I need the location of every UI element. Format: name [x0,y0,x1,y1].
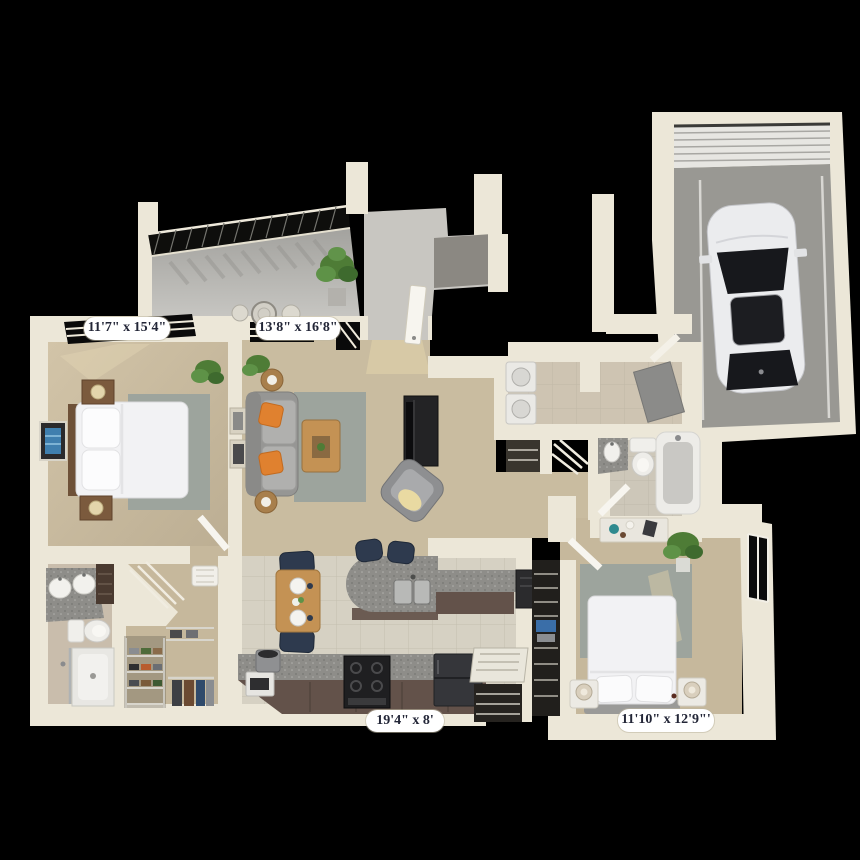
pillow [82,450,120,490]
drain [90,673,96,679]
dimension-label-second-bedroom: 11'10" x 12'9"' [618,709,714,732]
tv [406,402,413,460]
bedroom2-window [748,534,768,602]
toaster-oven [246,672,274,696]
garage-door [674,124,830,168]
foyer-floor [430,378,496,472]
counter [436,570,516,614]
wall-art [40,422,66,460]
trash-bin [256,650,280,672]
throw-pillow [258,402,284,428]
stoop-pillar [346,162,368,214]
tv-console [404,396,438,466]
sink [49,578,71,598]
floorplan-image: 11'7" x 15'4" 13'8" x 16'8" 19'4" x 8' 1… [0,0,860,860]
vanity-sink [598,438,628,474]
sink [73,574,95,594]
toilet [630,438,656,476]
sunlight-patch [366,340,430,374]
stoop-pillar [474,174,502,240]
shower-head [61,662,66,667]
door-handle [412,336,416,340]
nightstand [80,496,112,520]
pillow [82,408,120,448]
bed [68,402,188,498]
stove [344,656,390,708]
throw-pillow [258,450,283,475]
bar-stool [355,538,384,562]
pillow [635,675,672,703]
dining-table [276,570,320,632]
towels [536,620,556,632]
lamp [91,385,105,399]
laundry-basket [192,566,218,586]
windshield [717,248,792,295]
nightstand [82,380,114,404]
bathtub [656,432,700,514]
lamp [89,501,103,515]
patio-chair [232,305,248,321]
hall-closet [506,440,540,472]
dimension-label-kitchen: 19'4" x 8' [366,710,444,732]
bar-stool [387,540,415,564]
shoe-rack [124,636,166,708]
dimension-label-living-room: 13'8" x 16'8" [256,317,340,340]
dining-chair [279,629,314,653]
pantry-shelves [470,648,528,722]
plate [290,610,306,626]
toilet [68,620,110,642]
stoop-shaded-wall [434,234,492,288]
washer [506,362,536,392]
lamp [261,497,271,507]
sofa [246,392,298,496]
nightstand [678,678,706,706]
plate [290,578,306,594]
dryer [506,394,536,424]
cup [307,583,313,589]
pillow [595,675,632,703]
faucet [675,435,681,441]
linen-closet [532,560,560,716]
desk [600,518,668,542]
kitchen-island [346,556,438,620]
cup [307,615,313,621]
side-table [261,369,283,391]
dimension-label-master-bedroom: 11'7" x 15'4" [84,317,170,340]
clothes-rack [168,678,214,706]
side-table [255,491,277,513]
faucet [411,575,416,580]
sunroof [730,294,785,346]
nightstand [570,680,598,708]
coffee-table [302,420,340,472]
lamp [267,375,277,385]
